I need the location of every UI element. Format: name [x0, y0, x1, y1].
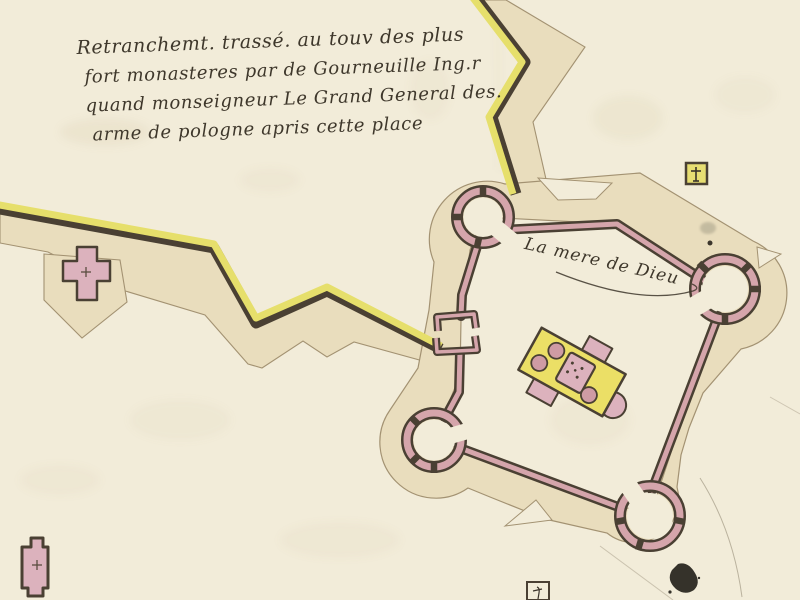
- south-square-marker: [527, 582, 549, 600]
- ink-dot: [708, 241, 713, 246]
- ink-smudge: [700, 222, 716, 234]
- northeast-cross-marker: [686, 163, 707, 184]
- southwest-chapel: [22, 538, 48, 596]
- bastion-ring-southeast: [615, 485, 685, 550]
- map-canvas: Retranchemt. trassé. au touv des plus fo…: [0, 0, 800, 600]
- map-title: Retranchemt. trassé. au touv des plus fo…: [76, 19, 504, 150]
- bastion-ring-northwest: [452, 186, 512, 247]
